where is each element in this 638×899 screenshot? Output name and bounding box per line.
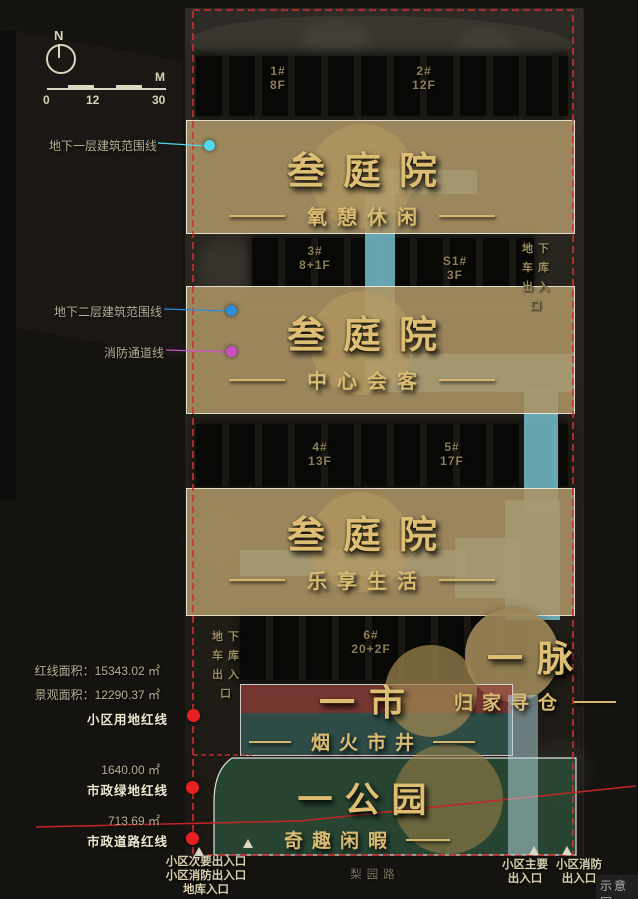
building-no: 4# — [294, 440, 346, 454]
label-basement1-line: 地下一层建筑范围线 — [0, 137, 157, 154]
garage-row: 车库 — [516, 259, 560, 278]
compass-needle — [58, 44, 60, 58]
building-floors: 20+2F — [340, 642, 402, 656]
zone-title: 一市 — [186, 674, 538, 726]
subtitle-dash-right — [439, 215, 495, 217]
subtitle-dash-left — [249, 741, 291, 743]
label-fire-lane: 消防通道线 — [0, 344, 164, 361]
zone-label-park: 一公园 奇趣闲暇 — [186, 772, 538, 853]
scale-tick-12: 12 — [86, 93, 99, 107]
subtitle-dash-right — [406, 839, 450, 841]
garage-row: 出入 — [516, 278, 560, 297]
building-no: 3# — [289, 244, 341, 258]
zone-subtitle-row: 奇趣闲暇 — [186, 826, 538, 853]
building-tag-3: 3# 8+1F — [289, 244, 341, 272]
entry-arrow-fire-right — [562, 846, 572, 855]
label-municipal-green-line: 市政绿地红线 — [0, 780, 168, 799]
building-floors: 17F — [426, 454, 478, 468]
label-municipal-road-value: 713.69 ㎡ — [0, 812, 160, 829]
main-entry-label: 小区主要 出入口 — [497, 858, 553, 886]
zone-subtitle-row: 烟火市井 — [186, 728, 538, 755]
subtitle-dash-right — [433, 741, 475, 743]
scale-bar-segment — [68, 85, 94, 89]
zone-label-courtyard2: 叁庭院 中心会客 — [186, 304, 538, 394]
building-no: 2# — [398, 64, 450, 78]
label-plot-red-line: 小区用地红线 — [0, 709, 168, 728]
building-floors: 3F — [429, 268, 481, 282]
zone-title: 一公园 — [186, 772, 538, 823]
label-municipal-green-value: 1640.00 ㎡ — [0, 761, 160, 778]
zone-subtitle: 氧憩休闲 — [297, 201, 427, 230]
building-tag-4: 4# 13F — [294, 440, 346, 468]
scale-bar-line — [47, 88, 166, 90]
building-floors: 13F — [294, 454, 346, 468]
label-basement2-line: 地下二层建筑范围线 — [0, 303, 162, 320]
subtitle-dash-left — [229, 579, 285, 581]
zone-subtitle: 中心会客 — [297, 365, 427, 394]
zone-label-courtyard1: 叁庭院 氧憩休闲 — [186, 140, 538, 230]
scale-bar-segment — [116, 85, 142, 89]
building-floors: 12F — [398, 78, 450, 92]
subtitle-dash-left — [229, 379, 285, 381]
zone-subtitle-row: 氧憩休闲 — [186, 201, 538, 230]
garage-entry-label: 地库入口 — [121, 883, 291, 897]
label-municipal-road-line: 市政道路红线 — [0, 831, 168, 850]
garage-row: 地下 — [516, 240, 560, 259]
building-no: 5# — [426, 440, 478, 454]
zone-label-market: 一市 烟火市井 — [186, 674, 538, 755]
zone-subtitle: 乐享生活 — [297, 565, 427, 594]
zone-title: 叁庭院 — [186, 140, 538, 195]
watermark: 示意图 — [596, 875, 638, 899]
zone-title: 叁庭院 — [186, 304, 538, 359]
garage-row: 地下 — [206, 628, 250, 647]
site-plan-canvas: N 0 12 30 M 地下一层建筑范围线 地下二层建筑范围线 消防通道线 红线… — [0, 0, 638, 899]
zone-title: 叁庭院 — [186, 504, 538, 559]
subtitle-dash-right — [439, 379, 495, 381]
subtitle-dash-right — [574, 701, 616, 703]
road-name-label: 梨园路 — [330, 868, 420, 882]
compass-icon — [46, 44, 76, 74]
building-tag-5: 5# 17F — [426, 440, 478, 468]
scale-tick-0: 0 — [43, 93, 50, 107]
garage-row: 车库 — [206, 647, 250, 666]
zone-subtitle-row: 中心会客 — [186, 365, 538, 394]
bottom-left-entry-labels: 小区次要出入口 小区消防出入口 地库入口 — [121, 855, 291, 897]
building-tag-1: 1# 8F — [252, 64, 304, 92]
main-entry-line1: 小区主要 — [497, 858, 553, 872]
scale-unit: M — [155, 70, 165, 84]
building-floors: 8+1F — [289, 258, 341, 272]
entry-arrow-secondary — [243, 839, 253, 848]
compass-north-label: N — [54, 28, 63, 43]
fire-entry-line1: 小区消防 — [551, 858, 607, 872]
building-no: 6# — [340, 628, 402, 642]
building-tag-s1: S1# 3F — [429, 254, 481, 282]
entry-arrow-main — [529, 846, 539, 855]
label-landscape-area: 景观面积：12290.37 ㎡ — [0, 686, 160, 703]
label-red-line-area: 红线面积：15343.02 ㎡ — [0, 662, 160, 679]
building-no: 1# — [252, 64, 304, 78]
building-floors: 8F — [252, 78, 304, 92]
zone-subtitle: 烟火市井 — [301, 728, 423, 755]
zone-label-courtyard3: 叁庭院 乐享生活 — [186, 504, 538, 594]
building-tag-6: 6# 20+2F — [340, 628, 402, 656]
building-no: S1# — [429, 254, 481, 268]
secondary-entry-label: 小区次要出入口 — [121, 855, 291, 869]
scale-tick-30: 30 — [152, 93, 165, 107]
main-entry-line2: 出入口 — [497, 872, 553, 886]
zone-subtitle-row: 乐享生活 — [186, 565, 538, 594]
fire-entry-left-label: 小区消防出入口 — [121, 869, 291, 883]
subtitle-dash-left — [229, 215, 285, 217]
zone-subtitle: 奇趣闲暇 — [274, 826, 396, 853]
subtitle-dash-right — [439, 579, 495, 581]
building-tag-2: 2# 12F — [398, 64, 450, 92]
